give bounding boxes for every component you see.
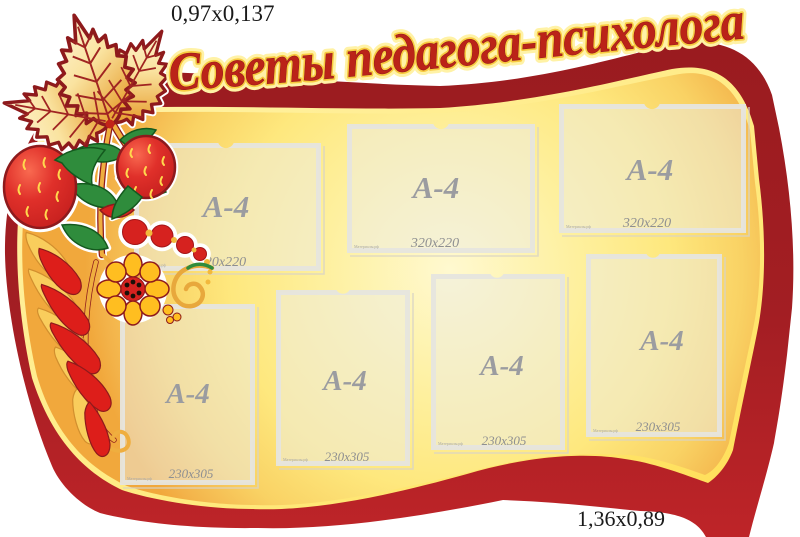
svg-text:А-4: А-4 <box>321 365 367 397</box>
svg-text:230х305: 230х305 <box>636 419 681 434</box>
svg-text:Материалы.рф: Материалы.рф <box>593 428 618 433</box>
svg-text:230х305: 230х305 <box>325 449 370 464</box>
svg-text:А-4: А-4 <box>201 189 250 224</box>
svg-text:А-4: А-4 <box>625 152 674 187</box>
svg-text:0,97х0,137: 0,97х0,137 <box>171 1 275 26</box>
svg-text:230х305: 230х305 <box>169 466 214 481</box>
svg-text:Материалы.рф: Материалы.рф <box>566 224 591 229</box>
svg-text:А-4: А-4 <box>478 350 524 382</box>
svg-text:230х305: 230х305 <box>482 433 527 448</box>
svg-text:А-4: А-4 <box>638 325 684 357</box>
svg-text:Материалы.рф: Материалы.рф <box>438 441 463 446</box>
svg-text:Материалы.рф: Материалы.рф <box>354 244 379 249</box>
svg-text:Материалы.рф: Материалы.рф <box>127 476 152 481</box>
svg-text:1,36х0,89: 1,36х0,89 <box>577 506 665 531</box>
svg-text:320х220: 320х220 <box>622 216 671 231</box>
svg-text:А-4: А-4 <box>164 378 210 410</box>
svg-text:Материалы.рф: Материалы.рф <box>283 457 308 462</box>
svg-text:320х220: 320х220 <box>410 236 459 251</box>
svg-text:А-4: А-4 <box>411 170 460 205</box>
